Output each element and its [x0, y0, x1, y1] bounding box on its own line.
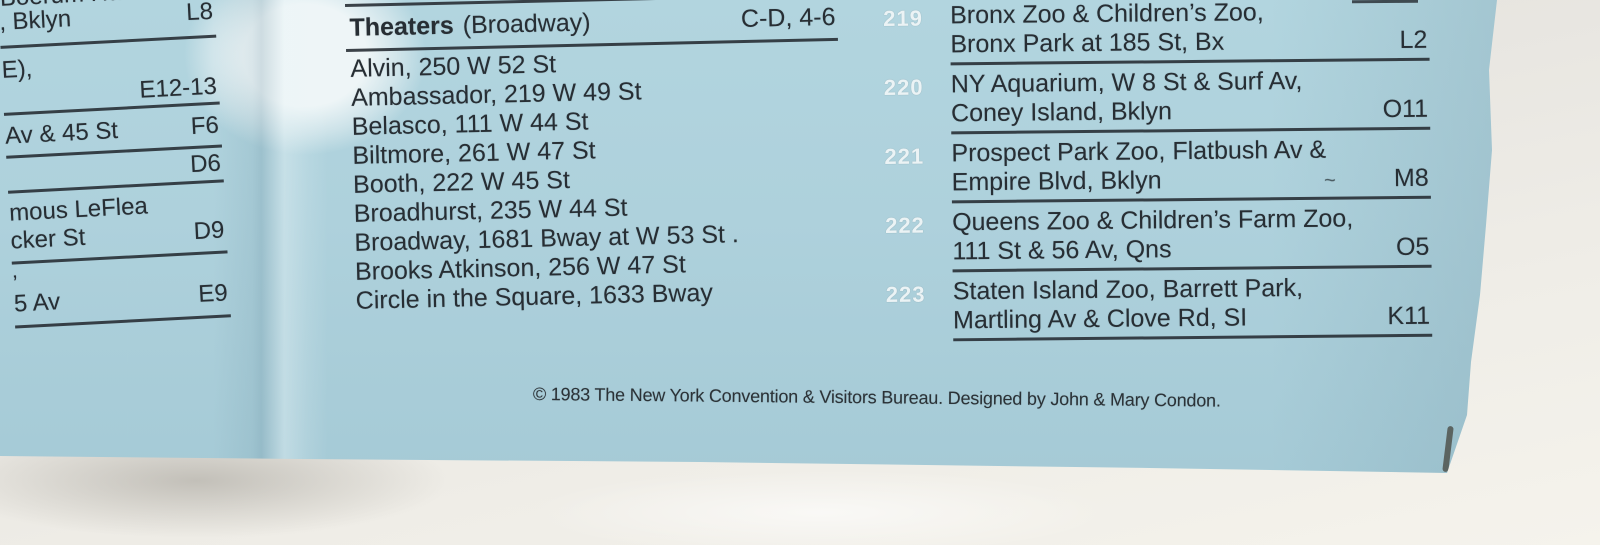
grid-reference: M8	[1394, 164, 1429, 193]
left-index-column: Boerum Ha , Bklyn L8 E), E12-13 Av & 45 …	[0, 0, 231, 329]
theaters-title-qualifier: (Broadway)	[462, 8, 590, 39]
grid-reference: D6	[190, 151, 222, 179]
zoo-entry: 219 Bronx Zoo & Children’s Zoo, Bronx Pa…	[880, 0, 1430, 66]
zoo-entry: 223 Staten Island Zoo, Barrett Park, Mar…	[883, 273, 1433, 342]
copyright-line: © 1983 The New York Convention & Visitor…	[533, 384, 1221, 412]
zoo-entry-line1: NY Aquarium, W 8 St & Surf Av,	[951, 66, 1430, 100]
zoos-section: 219 Bronx Zoo & Children’s Zoo, Bronx Pa…	[880, 0, 1432, 347]
grid-reference: L2	[1399, 26, 1427, 55]
entry-text: 5 Av	[13, 288, 61, 318]
theaters-title-group: Theaters(Broadway)	[349, 8, 591, 42]
zoo-entry-line2: Empire Blvd, Bklyn	[952, 166, 1162, 196]
zoo-entry-number: 219	[880, 1, 938, 66]
entry-text: cker St	[10, 224, 86, 256]
grid-reference: L8	[186, 0, 214, 27]
grid-reference: E12-13	[139, 73, 218, 104]
photo-of-map-index: Boerum Ha , Bklyn L8 E), E12-13 Av & 45 …	[0, 0, 1600, 545]
zoo-entry-number: 220	[881, 70, 939, 135]
index-entry: E), E12-13	[1, 38, 220, 116]
index-entry: mous LeFlea cker St D9	[8, 188, 227, 264]
stray-mark: ~	[1324, 167, 1336, 196]
theaters-title: Theaters	[349, 12, 454, 42]
zoo-entry-line2: Martling Av & Clove Rd, SI	[953, 303, 1247, 334]
zoo-entry-number: 221	[881, 139, 939, 204]
zoo-entry-line1: Queens Zoo & Children’s Farm Zoo,	[952, 204, 1431, 238]
zoo-entry-line2: 111 St & 56 Av, Qns	[952, 235, 1171, 265]
zoo-entry-number: 222	[882, 208, 940, 273]
fold-crease	[213, 0, 328, 482]
grid-reference: F6	[190, 112, 219, 141]
zoo-entry-line1: Staten Island Zoo, Barrett Park,	[953, 273, 1432, 307]
grid-reference: O5	[1396, 233, 1430, 262]
grid-reference: O11	[1383, 95, 1429, 124]
grid-reference: D9	[193, 216, 225, 246]
index-entry: ’ 5 Av E9	[12, 265, 230, 328]
zoo-entry: 220 NY Aquarium, W 8 St & Surf Av, Coney…	[881, 66, 1431, 135]
theater-list: Alvin, 250 W 52 St Ambassador, 219 W 49 …	[346, 44, 844, 316]
zoo-entry: 221 Prospect Park Zoo, Flatbush Av & Emp…	[881, 135, 1431, 204]
zoo-entry-number: 223	[883, 277, 941, 342]
zoo-entry-line1: Prospect Park Zoo, Flatbush Av &	[951, 135, 1430, 169]
theaters-header: Theaters(Broadway) C-D, 4-6	[345, 0, 838, 52]
theaters-section: Theaters(Broadway) C-D, 4-6 Alvin, 250 W…	[345, 0, 844, 316]
zoo-entry-line2: Coney Island, Bklyn	[951, 97, 1172, 127]
entry-text: E),	[1, 55, 33, 85]
zoo-entry-line2: Bronx Park at 185 St, Bx	[950, 28, 1224, 59]
grid-reference: E9	[198, 279, 229, 308]
grid-reference: C-D, 4-6	[741, 3, 836, 34]
map-index-page: Boerum Ha , Bklyn L8 E), E12-13 Av & 45 …	[0, 0, 1502, 482]
table-highlight	[430, 455, 1210, 545]
entry-text: Av & 45 St	[4, 117, 118, 151]
zoo-entry: 222 Queens Zoo & Children’s Farm Zoo, 11…	[882, 204, 1432, 273]
grid-reference: K11	[1387, 302, 1430, 331]
